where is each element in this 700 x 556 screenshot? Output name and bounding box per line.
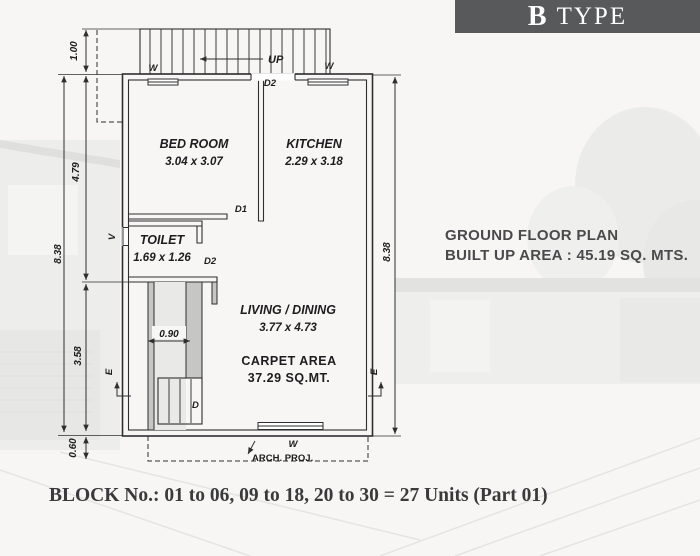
- window-top-right: [308, 79, 348, 85]
- dim-text-arch-offset: 0.60: [68, 438, 79, 458]
- living-size: 3.77 x 4.73: [259, 322, 317, 334]
- toilet-size: 1.69 x 1.26: [133, 252, 191, 264]
- window-label-top-left: W: [149, 63, 159, 74]
- interior-walls: [129, 80, 264, 304]
- carpet-area-label: CARPET AREA: [241, 354, 336, 368]
- floor-plan-canvas: BED ROOM 3.04 x 3.07 KITCHEN 2.29 x 3.18…: [0, 0, 700, 556]
- block-caption: BLOCK No.: 01 to 06, 09 to 18, 20 to 30 …: [49, 485, 669, 507]
- window-bottom: [258, 423, 323, 430]
- window-label-bottom: W: [289, 439, 299, 450]
- type-banner-word: TYPE: [557, 3, 628, 31]
- dim-text-passage-width: 0.90: [159, 329, 179, 340]
- kitchen-size: 2.29 x 3.18: [284, 156, 343, 168]
- dim-text-right-total: 8.38: [382, 242, 393, 262]
- door-label-stair: D: [192, 400, 199, 411]
- type-banner: B TYPE: [455, 0, 700, 33]
- window-label-top-right: W: [325, 61, 335, 72]
- entry-label-left: E: [104, 368, 115, 375]
- dim-text-left-total: 8.38: [53, 244, 64, 264]
- plan-title: GROUND FLOOR PLAN: [445, 226, 695, 246]
- dim-text-stair-depth: 1.00: [69, 41, 80, 61]
- living-label: LIVING / DINING: [240, 303, 336, 317]
- dim-text-lower-left: 3.58: [73, 346, 84, 366]
- arch-proj-label: ARCH. PROJ.: [252, 453, 313, 464]
- window-top-left: [148, 79, 178, 85]
- projection-outlines: [97, 30, 368, 461]
- toilet-label: TOILET: [140, 233, 186, 247]
- plan-annotation: GROUND FLOOR PLAN BUILT UP AREA : 45.19 …: [445, 226, 695, 266]
- dim-text-upper-left: 4.79: [71, 162, 82, 183]
- door2-label-toilet: D2: [204, 256, 217, 267]
- type-banner-letter: B: [528, 1, 548, 33]
- ventilator: [122, 227, 129, 246]
- door1-label: D1: [235, 204, 247, 215]
- door2-label-top: D2: [264, 78, 277, 89]
- entry-arrow-right: [368, 382, 381, 396]
- stair-treads: [150, 29, 326, 74]
- top-staircase: [140, 29, 330, 74]
- entry-label-right: E: [369, 368, 380, 375]
- vent-label: V: [107, 233, 118, 240]
- bedroom-label: BED ROOM: [160, 137, 229, 151]
- bedroom-size: 3.04 x 3.07: [165, 156, 223, 168]
- built-up-area: BUILT UP AREA : 45.19 SQ. MTS.: [445, 246, 695, 266]
- carpet-area-value: 37.29 SQ.MT.: [248, 371, 330, 385]
- up-label: UP: [268, 54, 284, 66]
- floor-plan-page: BED ROOM 3.04 x 3.07 KITCHEN 2.29 x 3.18…: [0, 0, 700, 556]
- kitchen-label: KITCHEN: [286, 137, 343, 151]
